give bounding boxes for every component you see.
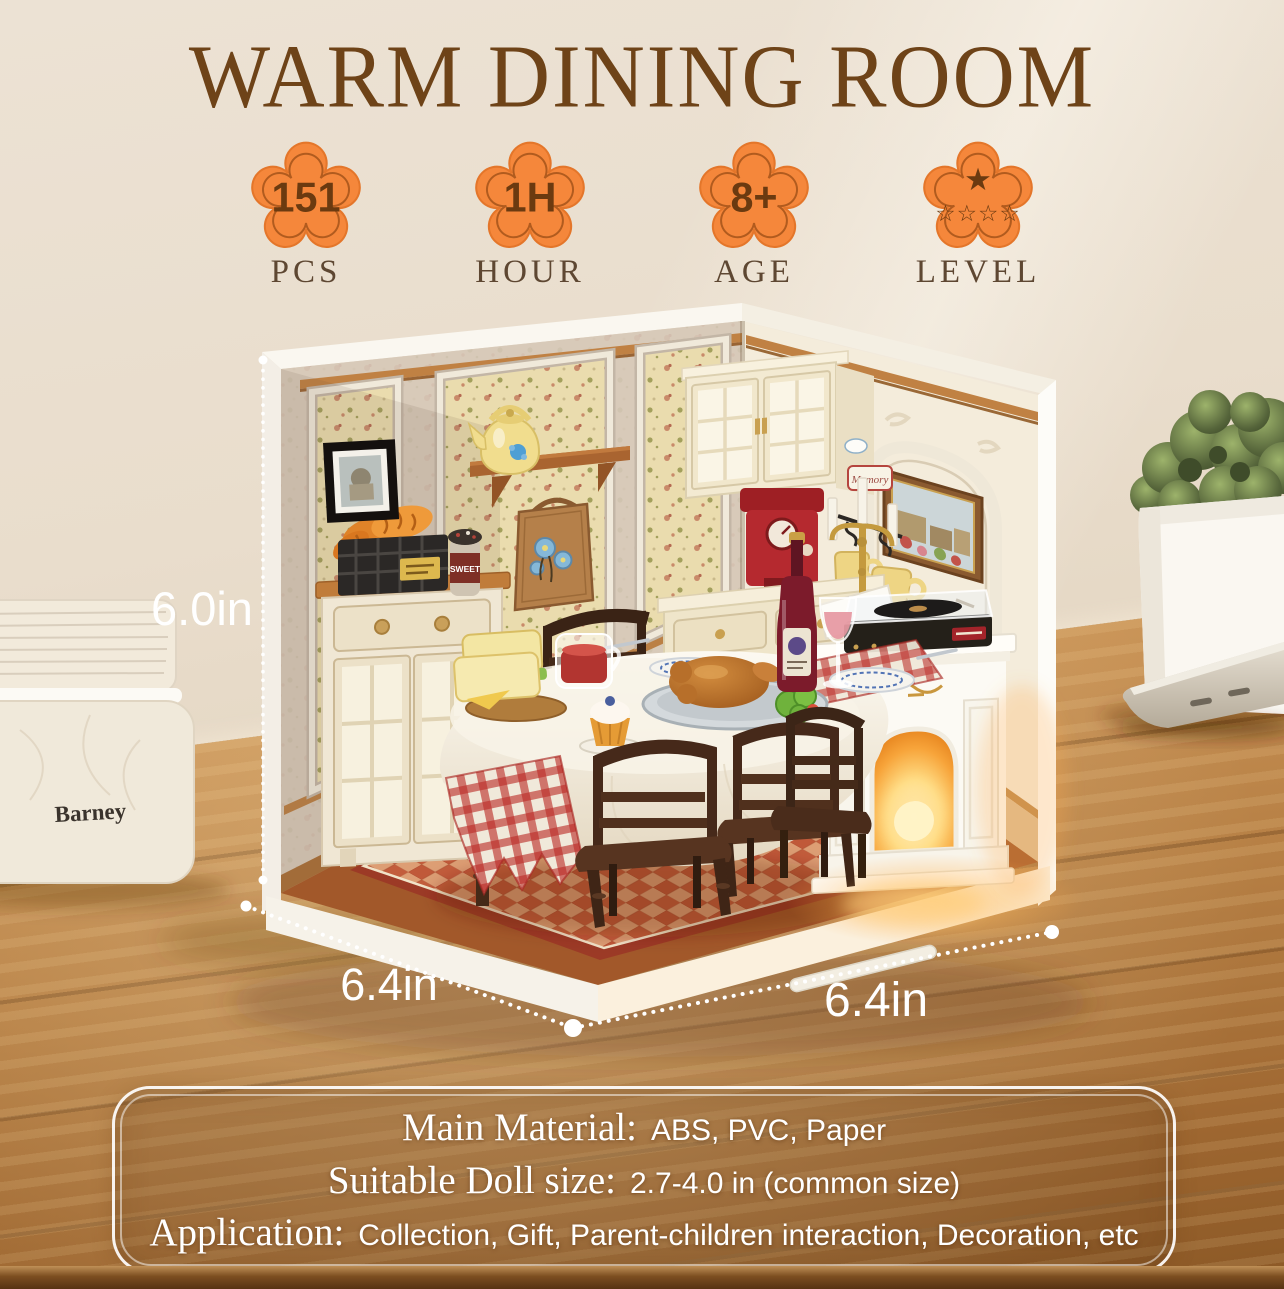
badge-label: PCS [271, 254, 342, 291]
badge-pieces: 151 PCS [240, 136, 372, 291]
flower-badge-icon: ★ ☆☆☆☆ [916, 136, 1040, 250]
table-front-edge [0, 1266, 1284, 1289]
spec-panel: Main Material: ABS, PVC, Paper Suitable … [112, 1086, 1176, 1274]
spec-value: Collection, Gift, Parent-children intera… [358, 1219, 1138, 1253]
badge-label: LEVEL [916, 254, 1040, 291]
badge-label: HOUR [475, 254, 585, 291]
badge-row: 151 PCS 1H HOUR 8+ AGE ★ [0, 136, 1284, 291]
spec-row-application: Application: Collection, Gift, Parent-ch… [149, 1210, 1138, 1255]
spec-row-material: Main Material: ABS, PVC, Paper [402, 1105, 886, 1150]
spec-row-doll-size: Suitable Doll size: 2.7-4.0 in (common s… [328, 1158, 960, 1203]
spec-value: ABS, PVC, Paper [651, 1114, 886, 1148]
spec-label: Main Material: [402, 1105, 637, 1150]
flower-badge-icon: 151 [244, 136, 368, 250]
badge-value: 151 [272, 175, 341, 221]
flower-badge-icon: 8+ [692, 136, 816, 250]
badge-hours: 1H HOUR [464, 136, 596, 291]
badge-age: 8+ AGE [688, 136, 820, 291]
product-infographic: WARM DINING ROOM 151 PCS 1H HOUR 8+ [0, 0, 1284, 1289]
spec-label: Application: [149, 1210, 344, 1255]
badge-level: ★ ☆☆☆☆ LEVEL [912, 136, 1044, 291]
spec-label: Suitable Doll size: [328, 1158, 616, 1203]
spec-rows: Main Material: ABS, PVC, Paper Suitable … [115, 1089, 1173, 1271]
badge-value: 1H [504, 175, 557, 221]
level-stars-outline: ☆☆☆☆ [935, 201, 1021, 227]
flower-badge-icon: 1H [468, 136, 592, 250]
badge-label: AGE [714, 254, 794, 291]
level-star-filled: ★ [964, 162, 992, 198]
page-title: WARM DINING ROOM [0, 24, 1284, 129]
spec-value: 2.7-4.0 in (common size) [630, 1167, 960, 1201]
badge-value: 8+ [730, 175, 777, 221]
